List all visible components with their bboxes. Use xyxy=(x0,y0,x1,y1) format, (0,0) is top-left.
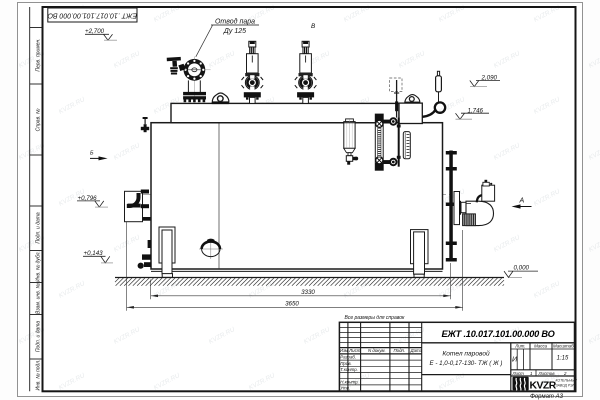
svg-text:KVZR: KVZR xyxy=(530,380,557,391)
svg-text:Инв. № подл.: Инв. № подл. xyxy=(36,359,42,390)
svg-text:Пров.: Пров. xyxy=(340,361,352,366)
svg-text:ЕЖТ .10.017.101.00.000 ВО: ЕЖТ .10.017.101.00.000 ВО xyxy=(47,11,137,18)
svg-text:ЗАВОД РЭП: ЗАВОД РЭП xyxy=(556,383,576,387)
svg-text:Лит.: Лит. xyxy=(514,343,525,348)
svg-text:Подп. и дата: Подп. и дата xyxy=(36,212,42,244)
svg-text:И: И xyxy=(512,355,518,364)
svg-text:3330: 3330 xyxy=(301,289,315,296)
svg-text:Масштаб: Масштаб xyxy=(553,343,574,348)
svg-text:Дата: Дата xyxy=(410,348,423,353)
svg-text:Т.контр.: Т.контр. xyxy=(340,367,358,372)
svg-text:Масса: Масса xyxy=(534,343,548,348)
svg-text:Листов: Листов xyxy=(538,371,556,376)
svg-text:1:15: 1:15 xyxy=(557,356,569,362)
svg-text:0,000: 0,000 xyxy=(514,265,530,272)
svg-text:2: 2 xyxy=(563,371,567,376)
svg-text:Утв.: Утв. xyxy=(340,386,350,391)
svg-text:Лист: Лист xyxy=(512,371,525,376)
svg-text:Разраб.: Разраб. xyxy=(340,355,356,360)
svg-text:Е - 1,0-0,17-130- ТЖ ( Ж ): Е - 1,0-0,17-130- ТЖ ( Ж ) xyxy=(430,360,503,367)
svg-text:Ду 125: Ду 125 xyxy=(223,28,246,35)
svg-text:Перв. примен.: Перв. примен. xyxy=(36,38,42,71)
svg-text:КОТЕЛЬНЫЙ: КОТЕЛЬНЫЙ xyxy=(556,379,578,383)
svg-text:В: В xyxy=(311,23,316,30)
svg-text:Изм Лист: Изм Лист xyxy=(340,348,361,353)
svg-text:Подп.: Подп. xyxy=(394,348,406,353)
svg-text:Формат А3: Формат А3 xyxy=(530,394,563,400)
svg-text:Взам. инв. №: Взам. инв. № xyxy=(36,282,42,314)
svg-text:Отвод пара: Отвод пара xyxy=(215,18,255,26)
svg-text:Н.контр.: Н.контр. xyxy=(340,379,359,384)
svg-text:N докум.: N докум. xyxy=(368,348,386,353)
svg-text:Подп. и дата: Подп. и дата xyxy=(36,321,42,353)
svg-text:ЕЖТ .10.017.101.00.000 ВО: ЕЖТ .10.017.101.00.000 ВО xyxy=(441,329,554,339)
svg-text:3650: 3650 xyxy=(285,300,299,307)
svg-text:Справ. №: Справ. № xyxy=(36,108,42,131)
svg-text:Б: Б xyxy=(90,151,94,157)
svg-text:А: А xyxy=(519,198,525,205)
svg-text:Котел паровой: Котел паровой xyxy=(442,350,490,358)
svg-text:Все размеры для справок: Все размеры для справок xyxy=(345,315,406,321)
svg-text:Инв. № дубл.: Инв. № дубл. xyxy=(36,251,42,282)
